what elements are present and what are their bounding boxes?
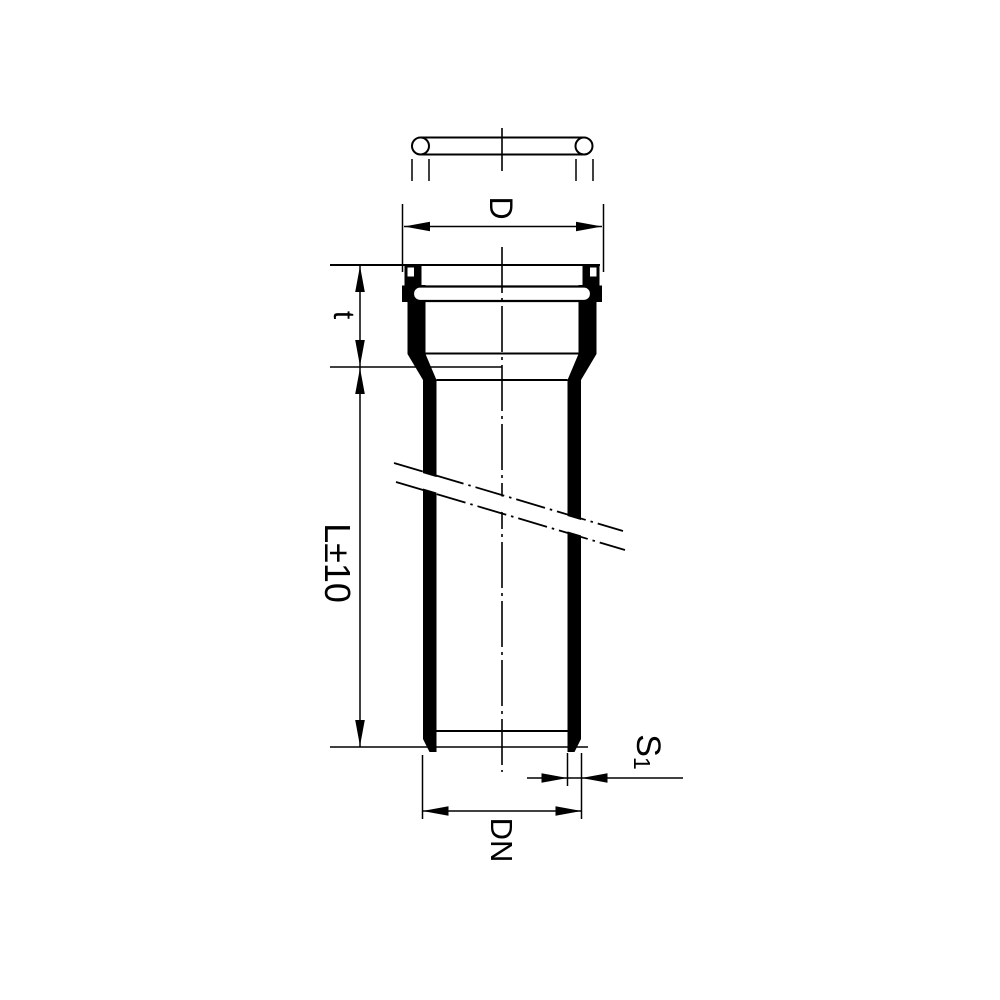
- t-arrow-down: [355, 340, 365, 366]
- o-ring-cord-left: [412, 138, 429, 155]
- dn-arrow-right: [556, 806, 582, 816]
- t-arrow-up: [355, 266, 365, 292]
- socket-taper-right: [568, 354, 597, 380]
- label-wall-thickness-subscript: 1: [630, 757, 653, 770]
- label-wall-thickness-symbol: S: [631, 734, 665, 757]
- o-ring-cord-right: [576, 138, 593, 155]
- label-socket-depth: t: [325, 295, 361, 335]
- d-arrow-right: [576, 222, 602, 232]
- l-arrow-up: [355, 368, 365, 394]
- l-arrow-down: [355, 720, 365, 746]
- barrel-wall-left: [423, 380, 437, 752]
- drawing-canvas: D t L±10 S1 DN: [0, 0, 1000, 1000]
- label-socket-outer-diameter: D: [483, 178, 519, 238]
- dimension-L: [330, 367, 588, 747]
- s1-arrow-right: [542, 773, 568, 783]
- dn-arrow-left: [423, 806, 449, 816]
- barrel-wall-right: [568, 380, 582, 752]
- s1-arrow-left: [582, 773, 608, 783]
- rim-notch-right: [590, 268, 597, 277]
- rim-notch-left: [408, 268, 415, 277]
- pipe-socket: [330, 265, 602, 380]
- label-wall-thickness: S1: [628, 717, 668, 787]
- label-pipe-length: L±10: [317, 503, 357, 623]
- label-nominal-diameter: DN: [484, 805, 520, 875]
- d-arrow-left: [404, 222, 430, 232]
